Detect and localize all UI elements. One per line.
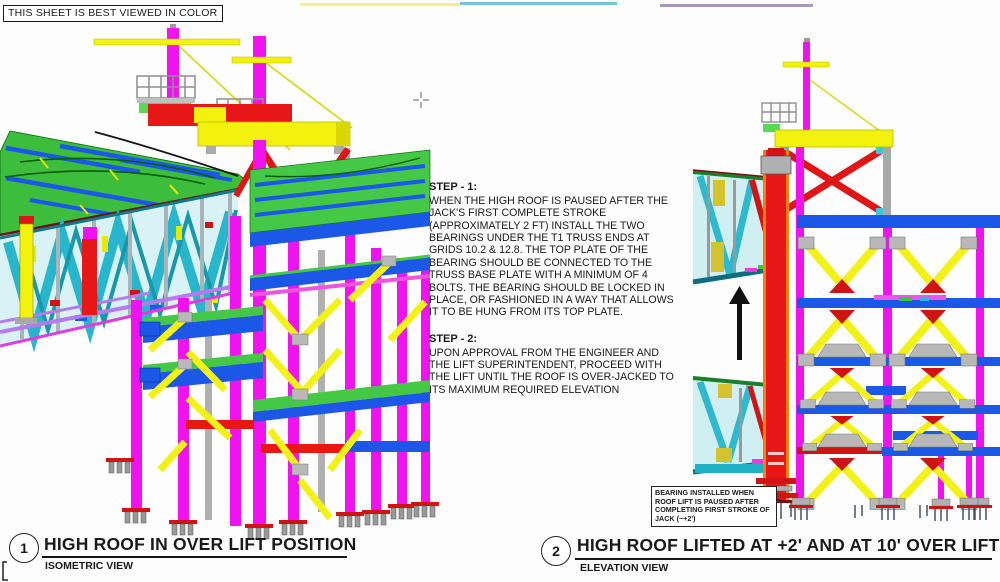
view2-number: 2 xyxy=(552,543,560,559)
view1-number: 1 xyxy=(20,540,28,556)
bearing-callout-text: BEARING INSTALLED WHEN ROOF LIFT IS PAUS… xyxy=(655,488,770,523)
lift-direction-arrow xyxy=(729,286,750,360)
step-instructions: STEP - 1: WHEN THE HIGH ROOF IS PAUSED A… xyxy=(429,181,681,410)
view1-subtitle: ISOMETRIC VIEW xyxy=(45,560,133,572)
view2-title: HIGH ROOF LIFTED AT +2' AND AT 10' OVER … xyxy=(577,535,999,556)
color-notice-text: THIS SHEET IS BEST VIEWED IN COLOR xyxy=(8,7,217,19)
view2-title-underline xyxy=(575,558,992,560)
elevation-header xyxy=(775,130,893,217)
color-notice-box: THIS SHEET IS BEST VIEWED IN COLOR xyxy=(3,5,223,22)
drawing-sheet: THIS SHEET IS BEST VIEWED IN COLOR STEP … xyxy=(0,0,1000,582)
step1-title: STEP - 1: xyxy=(429,181,681,194)
isometric-footings xyxy=(106,458,439,539)
elevation-view-drawing xyxy=(693,38,1000,521)
view2-number-bubble: 2 xyxy=(541,536,571,566)
step1-body: WHEN THE HIGH ROOF IS PAUSED AFTER THE J… xyxy=(429,195,681,319)
view1-title-underline xyxy=(42,556,347,558)
step2-title: STEP - 2: xyxy=(429,333,681,346)
step2-body: UPON APPROVAL FROM THE ENGINEER AND THE … xyxy=(429,347,681,397)
view1-number-bubble: 1 xyxy=(9,533,39,563)
top-edge-strips xyxy=(300,2,813,7)
crosshair-cursor xyxy=(413,92,429,108)
bearing-callout-box: BEARING INSTALLED WHEN ROOF LIFT IS PAUS… xyxy=(651,486,777,527)
sheet-corner-mark xyxy=(3,562,8,580)
isometric-view-drawing xyxy=(0,24,439,539)
view1-title: HIGH ROOF IN OVER LIFT POSITION xyxy=(44,534,356,555)
view2-subtitle: ELEVATION VIEW xyxy=(580,562,668,574)
